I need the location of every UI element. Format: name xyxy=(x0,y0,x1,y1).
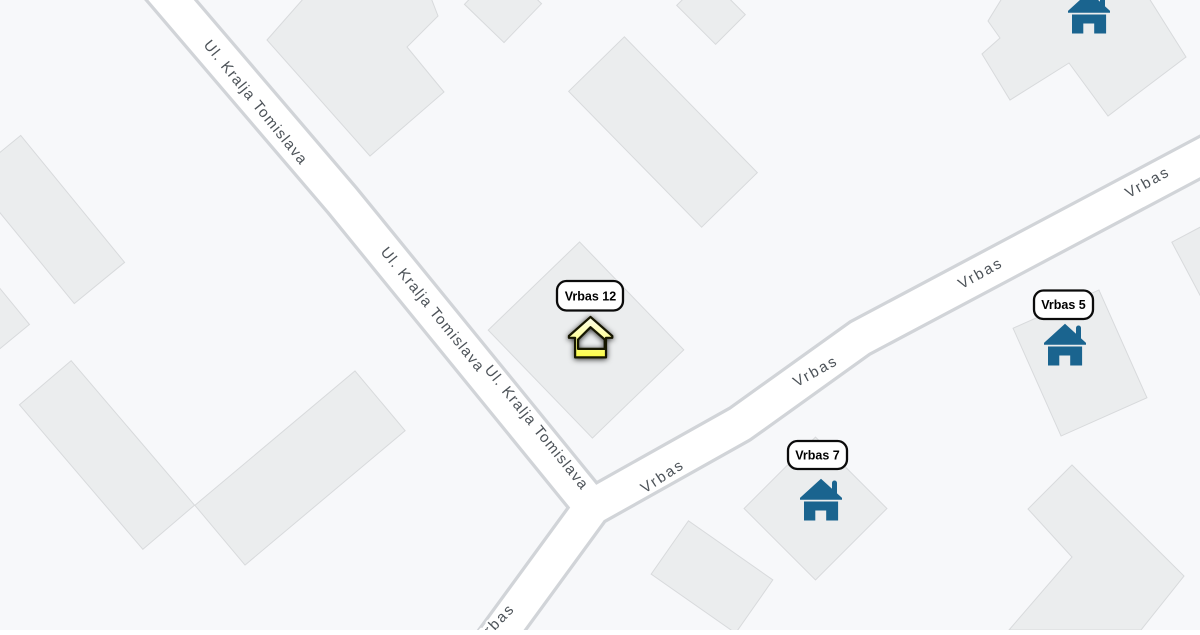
svg-text:Vrbas 7: Vrbas 7 xyxy=(795,449,840,463)
svg-text:Vrbas 12: Vrbas 12 xyxy=(565,290,616,304)
svg-text:Vrbas 5: Vrbas 5 xyxy=(1041,298,1086,312)
